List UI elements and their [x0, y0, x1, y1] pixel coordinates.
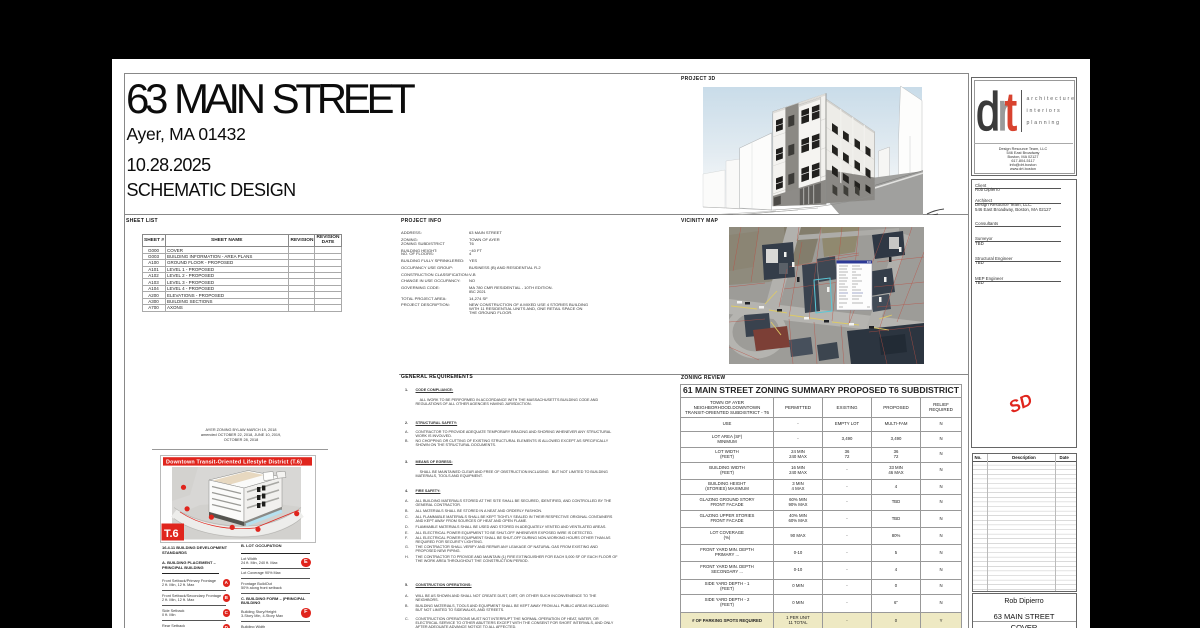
svg-text:Downtown Transit-Oriented Lif: Downtown Transit-Oriented Lifestyle Dist…: [166, 459, 302, 465]
svg-text:T.6: T.6: [164, 528, 179, 540]
svg-text:d: d: [976, 90, 1000, 134]
svg-text:t: t: [1005, 90, 1017, 134]
